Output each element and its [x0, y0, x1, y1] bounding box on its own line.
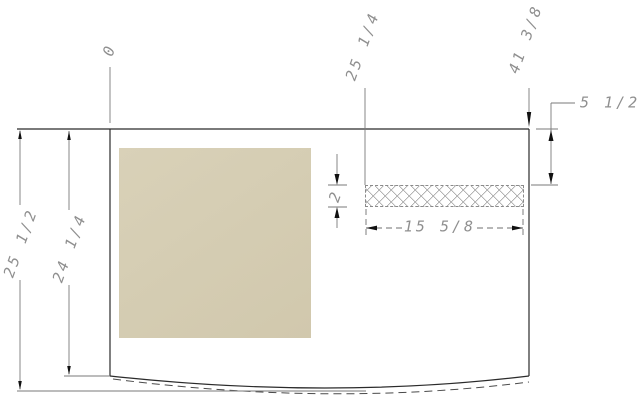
arrow-right-15	[512, 226, 523, 231]
arrow-up-5half	[549, 130, 554, 141]
arrow-down-25half	[18, 381, 22, 390]
arrow-down-41	[527, 112, 531, 127]
arrow-down-5half	[549, 173, 554, 184]
front-curve-edge	[110, 376, 529, 388]
hidden-front-edge	[113, 379, 529, 394]
arrow-up-24quarter	[67, 131, 71, 140]
arrow-left-15	[366, 226, 377, 231]
arrow-down-24quarter	[67, 366, 71, 375]
arrow-up-2	[335, 207, 340, 218]
linework-svg	[0, 0, 640, 410]
part-outline	[17, 129, 529, 388]
cad-drawing-canvas: 0 25 1/4 41 3/8 5 1/2 2 15 5/8 25 1/2 24…	[0, 0, 640, 410]
extension-lines	[17, 67, 558, 391]
dim-5half	[551, 103, 575, 184]
dim-label-5-1-2: 5 1/2	[580, 96, 640, 111]
arrow-down-2	[335, 174, 340, 185]
dim-label-15-5-8: 15 5/8	[404, 220, 476, 235]
arrow-up-25half	[18, 130, 22, 139]
